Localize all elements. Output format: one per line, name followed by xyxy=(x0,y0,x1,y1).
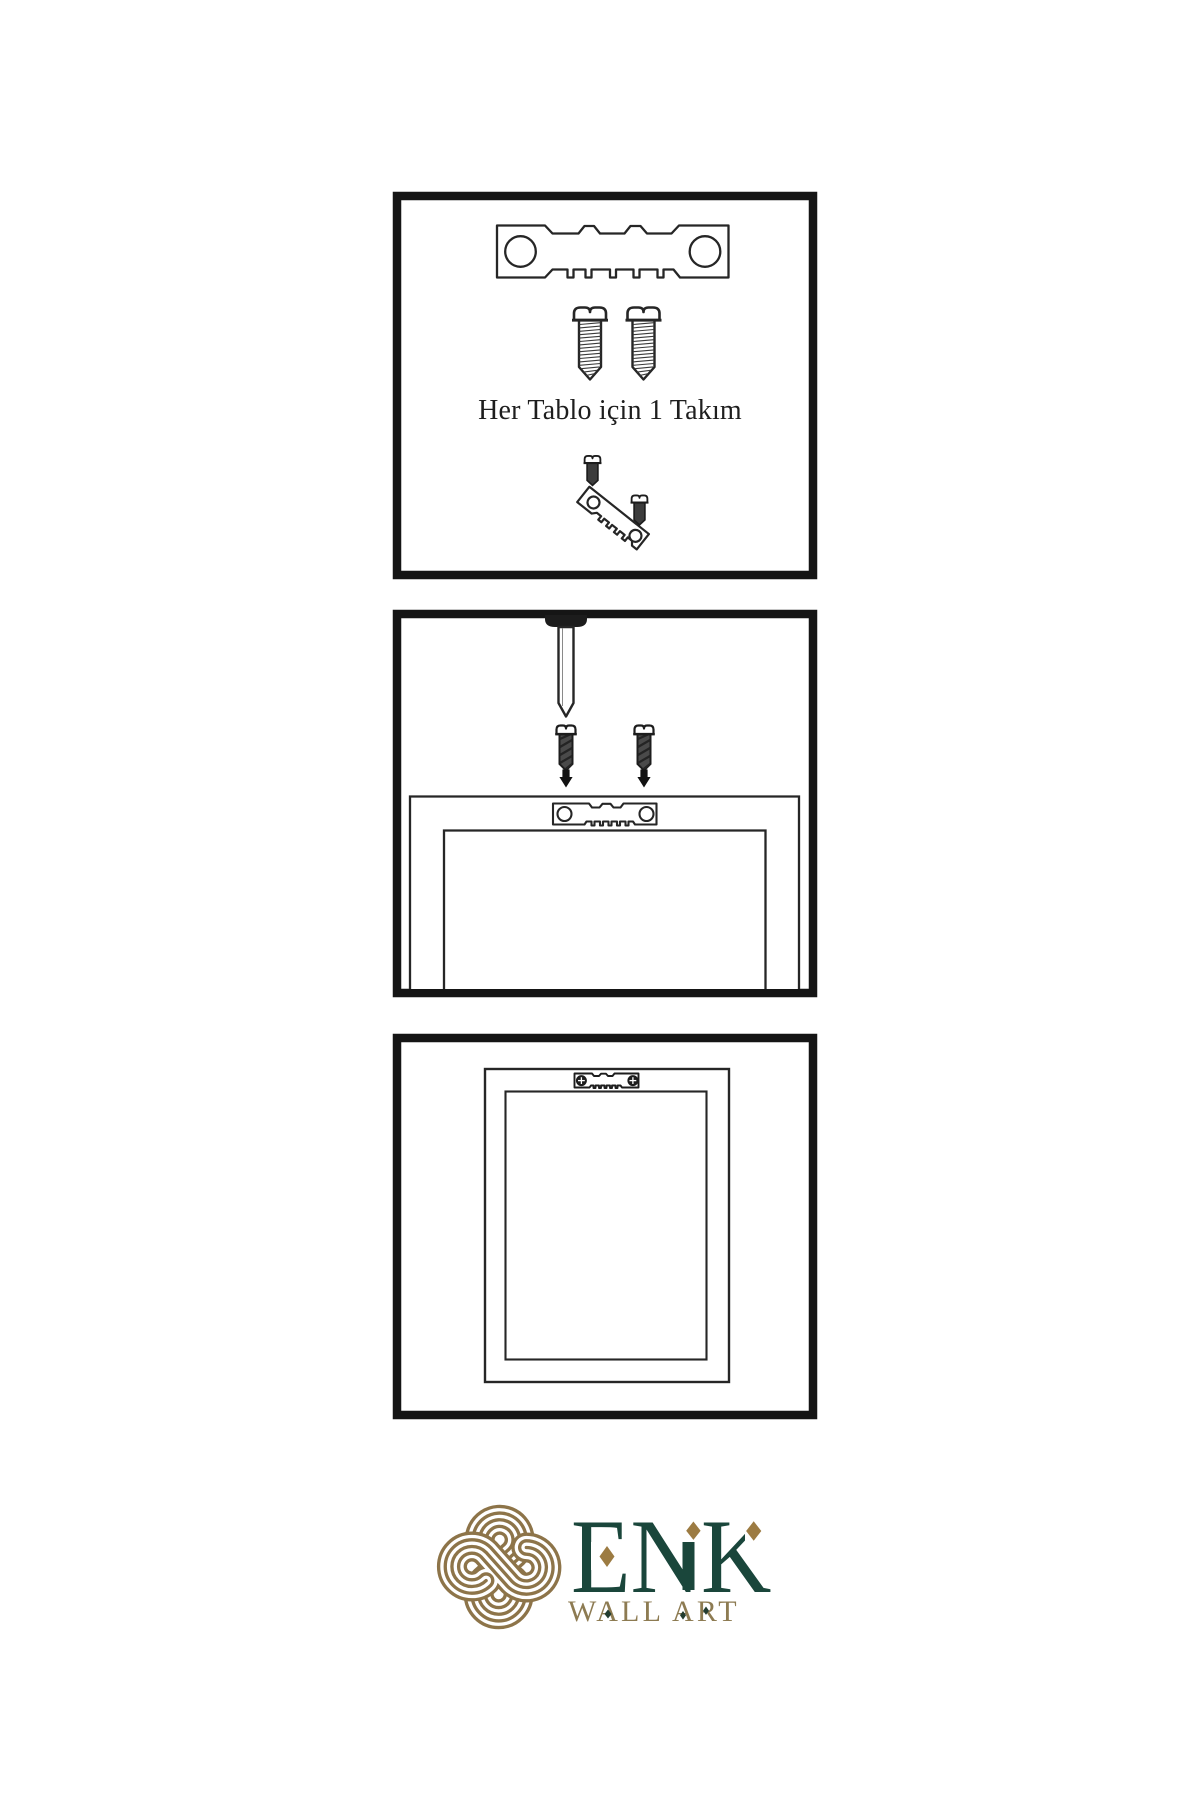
svg-text:Her Tablo için 1 Takım: Her Tablo için 1 Takım xyxy=(478,395,742,426)
svg-text:WALL ART: WALL ART xyxy=(568,1595,740,1628)
